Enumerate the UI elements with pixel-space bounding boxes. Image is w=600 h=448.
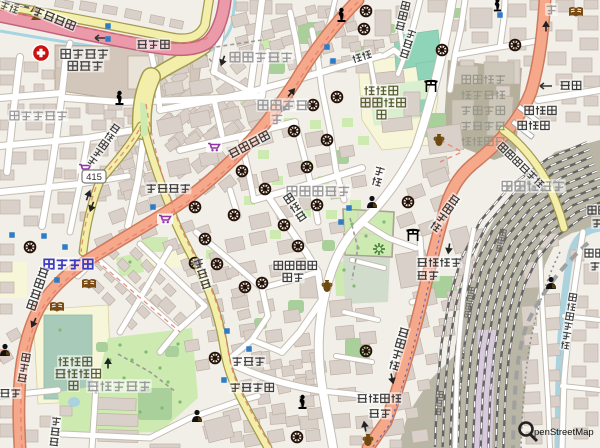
svg-text:415: 415 [86,172,102,183]
svg-text:penStreetMap: penStreetMap [534,427,594,438]
